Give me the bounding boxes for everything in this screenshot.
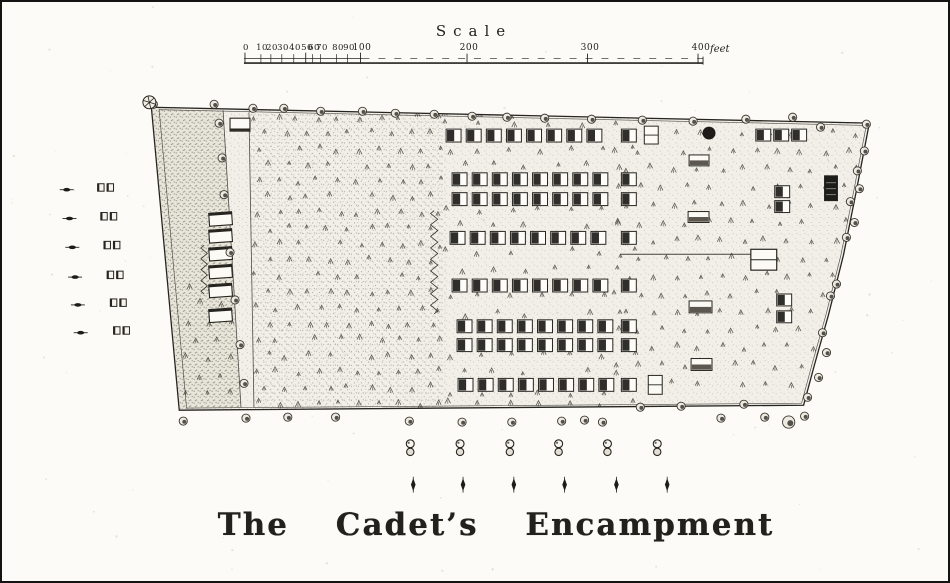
speckle xyxy=(239,254,240,255)
scale-tick-labels: 0102030405060708090100200300400 xyxy=(2,43,948,56)
tent-dark-half xyxy=(776,187,783,197)
tent-dark-half xyxy=(533,174,540,185)
tent-dark-half xyxy=(507,130,514,141)
speckle xyxy=(717,150,718,151)
tree-shade xyxy=(639,406,643,410)
pump-dot xyxy=(507,442,509,444)
speckle xyxy=(879,127,881,129)
pump-top-circle xyxy=(603,440,611,448)
tent-dark-half xyxy=(594,174,601,185)
speckle xyxy=(312,162,315,165)
tent-dark-half xyxy=(793,130,800,140)
speckle xyxy=(249,277,250,278)
tent-icon xyxy=(533,279,548,292)
speckle xyxy=(695,110,696,111)
tent-dark-half xyxy=(478,321,485,332)
building-dark-half xyxy=(690,160,708,165)
speckle xyxy=(827,159,829,161)
tree-shade xyxy=(433,113,437,117)
speckle xyxy=(491,568,494,571)
tent-icon xyxy=(497,339,512,352)
tent-icon xyxy=(598,320,613,333)
tree-shade xyxy=(820,126,824,130)
tree-shade xyxy=(544,117,548,121)
speckle xyxy=(483,318,485,320)
tree-shade xyxy=(836,283,840,287)
tree-shade xyxy=(822,331,826,335)
speckle xyxy=(352,17,353,18)
tree-icon xyxy=(317,107,325,115)
tree-shade xyxy=(245,417,249,421)
tree-shade xyxy=(561,420,565,424)
tree-icon xyxy=(638,116,646,124)
tent-dark-half xyxy=(776,202,783,212)
speckle xyxy=(231,568,232,569)
road-building xyxy=(209,283,233,297)
speckle xyxy=(556,312,558,314)
tree-shade xyxy=(182,420,186,424)
tree-shade xyxy=(218,122,222,126)
tree-icon xyxy=(789,113,797,121)
enclosure-interior xyxy=(151,107,869,410)
speckle xyxy=(55,151,56,152)
tree-shade xyxy=(229,251,233,255)
tent-dark-half xyxy=(622,379,629,390)
speckle xyxy=(107,210,108,211)
speckle xyxy=(918,548,920,550)
speckle xyxy=(283,415,285,417)
tree-shade xyxy=(234,299,238,303)
tent-dark-half xyxy=(538,321,545,332)
tent-icon xyxy=(512,279,527,292)
tent-icon xyxy=(457,320,472,333)
speckle xyxy=(719,298,721,300)
tent-icon xyxy=(538,339,553,352)
speckle xyxy=(816,356,817,357)
tent-dark-half xyxy=(513,194,520,205)
tent-dark-half xyxy=(599,321,606,332)
speckle xyxy=(281,329,283,331)
tent-icon xyxy=(621,378,636,391)
tent-icon xyxy=(470,231,485,244)
left-field-texture xyxy=(249,112,445,407)
speckle xyxy=(661,100,663,102)
tent-dark-half xyxy=(594,194,601,205)
tree-icon xyxy=(218,154,226,162)
tree-shade xyxy=(680,405,684,409)
tree-shade xyxy=(213,103,217,107)
margin-arrow-icon xyxy=(74,303,81,307)
tent-dark-half xyxy=(513,280,520,291)
speckle xyxy=(596,124,598,126)
tent-dark-half xyxy=(519,379,526,390)
speckle xyxy=(11,199,12,200)
pump-bottom-circle xyxy=(654,448,661,455)
tent-dark-half xyxy=(498,340,505,351)
tree-shade xyxy=(853,221,857,225)
scale-tick-label: 0 xyxy=(243,43,249,53)
speckle xyxy=(458,302,460,304)
speckle xyxy=(127,195,129,197)
speckle xyxy=(43,356,45,358)
tent-icon xyxy=(621,231,636,244)
tent-dark-half xyxy=(559,340,566,351)
scale-unit-label: feet xyxy=(710,44,730,55)
tree-shade xyxy=(846,236,850,240)
tent-icon xyxy=(517,320,532,333)
tent-icon xyxy=(621,129,636,142)
speckle xyxy=(13,155,15,157)
tree-icon xyxy=(226,248,234,256)
tree-shade xyxy=(506,116,510,120)
tree-icon xyxy=(816,123,824,131)
tent-icon xyxy=(553,279,568,292)
tent-icon xyxy=(551,231,566,244)
tree-icon xyxy=(215,119,223,127)
speckle xyxy=(787,310,788,311)
tent-icon xyxy=(531,231,546,244)
tree-icon xyxy=(832,280,840,288)
tent-icon xyxy=(558,320,573,333)
tent-dark-half xyxy=(548,130,555,141)
tree-shade xyxy=(320,110,324,114)
map-title: The Cadet’s Encampment xyxy=(218,507,775,543)
tent-dark-half xyxy=(498,321,505,332)
speckle xyxy=(641,318,642,319)
margin-arrow-icon xyxy=(77,331,84,335)
tent-dark-half xyxy=(757,130,764,140)
speckle xyxy=(353,433,355,435)
tent-dark-half xyxy=(453,280,460,291)
tent-dark-half xyxy=(574,194,581,205)
tree-icon xyxy=(541,114,549,122)
tree-shade xyxy=(591,118,595,122)
scale-tick-label: 40 xyxy=(289,43,301,53)
pump-top-circle xyxy=(555,440,563,448)
tree-icon xyxy=(231,296,239,304)
tent-dark-half xyxy=(559,321,566,332)
tree-icon xyxy=(284,413,292,421)
tent-icon xyxy=(573,279,588,292)
dark-building xyxy=(825,176,838,201)
tree-shade xyxy=(865,123,869,127)
tent-dark-half xyxy=(527,130,534,141)
speckle xyxy=(231,549,233,551)
tree-icon xyxy=(853,167,861,175)
tent-icon xyxy=(553,173,568,186)
tree-icon xyxy=(391,109,399,117)
speckle xyxy=(12,202,13,203)
tree-icon xyxy=(814,373,822,381)
speckle xyxy=(799,504,800,505)
tent-dark-half xyxy=(778,312,785,322)
tent-icon xyxy=(486,129,501,142)
tent-dark-half xyxy=(473,280,480,291)
pump-bottom-circle xyxy=(407,448,414,455)
speckle xyxy=(611,223,613,225)
tree-shade xyxy=(850,200,854,204)
tree-shade xyxy=(858,187,862,191)
tent-icon xyxy=(490,231,505,244)
tree-icon xyxy=(855,185,863,193)
tent-icon xyxy=(457,339,472,352)
tent-icon xyxy=(587,129,602,142)
tree-icon xyxy=(358,107,366,115)
tree-icon xyxy=(598,418,606,426)
tree-icon xyxy=(860,147,868,155)
tree-shade xyxy=(239,343,243,347)
tree-icon xyxy=(801,412,809,420)
tent-icon xyxy=(506,129,521,142)
speckle xyxy=(643,223,644,224)
tree-icon xyxy=(689,117,697,125)
tent-icon xyxy=(527,129,542,142)
tent-icon xyxy=(472,193,487,206)
tree-icon xyxy=(236,341,244,349)
tree-shade xyxy=(804,415,808,419)
tree-icon xyxy=(636,403,644,411)
tent-icon xyxy=(517,339,532,352)
tent-icon xyxy=(458,378,473,391)
building-dark-half xyxy=(690,307,711,312)
tent-icon xyxy=(775,186,790,198)
tree-shade xyxy=(252,107,256,111)
tree-icon xyxy=(240,379,248,387)
building-dark-half xyxy=(692,364,711,369)
tent-icon xyxy=(539,378,554,391)
speckle xyxy=(366,76,368,78)
speckle xyxy=(301,427,302,428)
tent-dark-half xyxy=(453,174,460,185)
tree-shade xyxy=(584,419,588,423)
speckle xyxy=(754,427,756,429)
tree-shade xyxy=(223,193,227,197)
margin-arrow-icon xyxy=(63,188,70,192)
tent-icon xyxy=(578,339,593,352)
tent-icon xyxy=(559,378,574,391)
scale-tick-label: 30 xyxy=(277,43,289,53)
speckle xyxy=(354,285,356,287)
tent-dark-half xyxy=(499,379,506,390)
speckle xyxy=(914,456,916,458)
tree-icon xyxy=(742,115,750,123)
speckle xyxy=(49,214,51,216)
speckle xyxy=(622,338,623,339)
tent-dark-half xyxy=(579,321,586,332)
tent-dark-half xyxy=(552,232,559,243)
tent-icon xyxy=(512,173,527,186)
tent-dark-half xyxy=(478,340,485,351)
pump-bottom-circle xyxy=(604,448,611,455)
tent-icon xyxy=(573,173,588,186)
speckle xyxy=(355,154,356,155)
speckle xyxy=(768,424,769,425)
speckle xyxy=(45,478,47,480)
tent-icon xyxy=(573,193,588,206)
speckle xyxy=(115,535,117,537)
pump-dot xyxy=(605,442,607,444)
tree-icon xyxy=(508,418,516,426)
tent-dark-half xyxy=(518,340,525,351)
tent-dark-half xyxy=(778,295,785,305)
speckle xyxy=(100,310,101,311)
tent-icon xyxy=(450,231,465,244)
tent-icon xyxy=(598,339,613,352)
tree-shade xyxy=(830,295,834,299)
pump-dot xyxy=(457,442,459,444)
speckle xyxy=(783,130,784,131)
tree-icon xyxy=(783,416,795,428)
tent-icon xyxy=(472,173,487,186)
tent-icon xyxy=(567,129,582,142)
tent-icon xyxy=(621,339,636,352)
tree-icon xyxy=(458,418,466,426)
tent-dark-half xyxy=(572,232,579,243)
tent-dark-half xyxy=(622,232,629,243)
speckle xyxy=(902,320,903,321)
speckle xyxy=(286,91,288,93)
tent-icon xyxy=(452,279,467,292)
speckle xyxy=(464,125,467,128)
speckle xyxy=(324,406,326,408)
tent-dark-half xyxy=(479,379,486,390)
speckle xyxy=(110,70,111,71)
speckle xyxy=(151,66,153,68)
tent-icon xyxy=(756,129,771,141)
speckle xyxy=(202,379,204,381)
tent-icon xyxy=(492,193,507,206)
speckle xyxy=(710,272,712,274)
road-building xyxy=(209,264,233,278)
tent-icon xyxy=(547,129,562,142)
tree-icon xyxy=(717,414,725,422)
tent-dark-half xyxy=(594,280,601,291)
speckle xyxy=(51,273,53,275)
tree-icon xyxy=(846,198,854,206)
speckle xyxy=(866,314,868,316)
speckle xyxy=(132,489,133,490)
speckle xyxy=(733,434,734,435)
speckle xyxy=(811,258,812,259)
speckle xyxy=(891,352,893,354)
speckle xyxy=(74,190,75,191)
tent-icon xyxy=(452,173,467,186)
tree-icon xyxy=(430,110,438,118)
tent-dark-half xyxy=(533,194,540,205)
tent-icon xyxy=(452,193,467,206)
tent-icon xyxy=(477,320,492,333)
speckle xyxy=(126,153,127,154)
speckle xyxy=(730,165,731,166)
tree-shade xyxy=(461,421,465,425)
tent-dark-half xyxy=(622,321,629,332)
speckle xyxy=(149,257,150,258)
tree-shade xyxy=(283,107,287,111)
tree-icon xyxy=(332,413,340,421)
map-plate: Scale 0102030405060708090100200300400 fe… xyxy=(0,0,950,583)
tree-icon xyxy=(587,115,595,123)
pump-dot xyxy=(655,442,657,444)
tent-icon xyxy=(593,173,608,186)
speckle xyxy=(441,570,443,572)
tent-icon xyxy=(599,378,614,391)
speckle xyxy=(868,293,870,295)
tent-icon xyxy=(774,129,789,141)
speckle xyxy=(483,219,485,221)
tent-dark-half xyxy=(538,340,545,351)
scale-tick-label: 300 xyxy=(581,43,600,53)
tent-dark-half xyxy=(493,194,500,205)
tent-icon xyxy=(533,173,548,186)
tent-dark-half xyxy=(491,232,498,243)
tent-dark-half xyxy=(554,194,561,205)
tent-icon xyxy=(621,320,636,333)
tent-icon xyxy=(621,173,636,186)
tent-dark-half xyxy=(579,340,586,351)
tree-shade xyxy=(745,118,749,122)
tent-icon xyxy=(533,193,548,206)
tent-dark-half xyxy=(513,174,520,185)
tree-shade xyxy=(641,119,645,123)
tree-icon xyxy=(761,413,769,421)
tent-icon xyxy=(593,193,608,206)
speckle xyxy=(661,66,662,67)
tent-icon xyxy=(558,339,573,352)
tree-icon xyxy=(826,292,834,300)
speckle xyxy=(749,91,750,92)
tent-dark-half xyxy=(554,280,561,291)
pump-dot xyxy=(556,442,558,444)
pump-top-circle xyxy=(406,440,414,448)
scale-tick-label: 200 xyxy=(460,43,479,53)
speckle xyxy=(331,232,333,234)
tent-dark-half xyxy=(493,280,500,291)
tree-shade xyxy=(792,116,796,120)
tent-dark-half xyxy=(539,379,546,390)
pump-bottom-circle xyxy=(555,448,562,455)
tree-shade xyxy=(863,150,867,154)
tree-icon xyxy=(862,120,870,128)
tent-dark-half xyxy=(453,194,460,205)
speckle xyxy=(545,404,546,405)
tent-dark-half xyxy=(473,194,480,205)
tent-icon xyxy=(492,279,507,292)
speckle xyxy=(931,281,932,282)
tent-icon xyxy=(553,193,568,206)
tent-icon xyxy=(777,294,792,306)
speckle xyxy=(610,353,612,355)
pump-top-circle xyxy=(456,440,464,448)
tent-icon xyxy=(579,378,594,391)
tent-icon xyxy=(593,279,608,292)
tent-icon xyxy=(478,378,493,391)
encampment-plan-drawing xyxy=(2,2,948,581)
road-building xyxy=(209,308,233,322)
speckle xyxy=(445,269,446,270)
speckle xyxy=(809,130,810,131)
pump-bottom-circle xyxy=(456,448,463,455)
tree-icon xyxy=(740,400,748,408)
tree-shade xyxy=(764,416,768,420)
tree-shade xyxy=(394,112,398,116)
speckle xyxy=(334,193,335,194)
tree-icon xyxy=(804,393,812,401)
tent-dark-half xyxy=(447,130,454,141)
tree-icon xyxy=(677,402,685,410)
tree-icon xyxy=(822,349,830,357)
speckle xyxy=(820,569,821,570)
tree-icon xyxy=(850,218,858,226)
